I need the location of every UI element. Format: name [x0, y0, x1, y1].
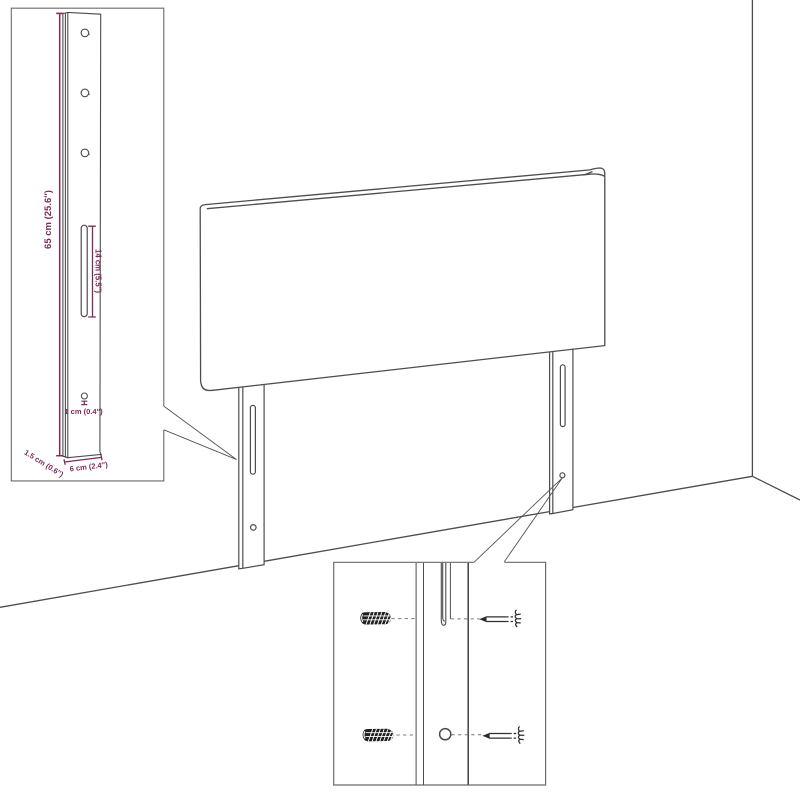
svg-text:1 cm (0.4″): 1 cm (0.4″): [64, 407, 103, 416]
svg-text:65 cm (25.6″): 65 cm (25.6″): [43, 190, 54, 249]
svg-text:6 cm (2.4″): 6 cm (2.4″): [69, 460, 109, 474]
svg-text:14 cm (5.5″): 14 cm (5.5″): [93, 249, 102, 293]
